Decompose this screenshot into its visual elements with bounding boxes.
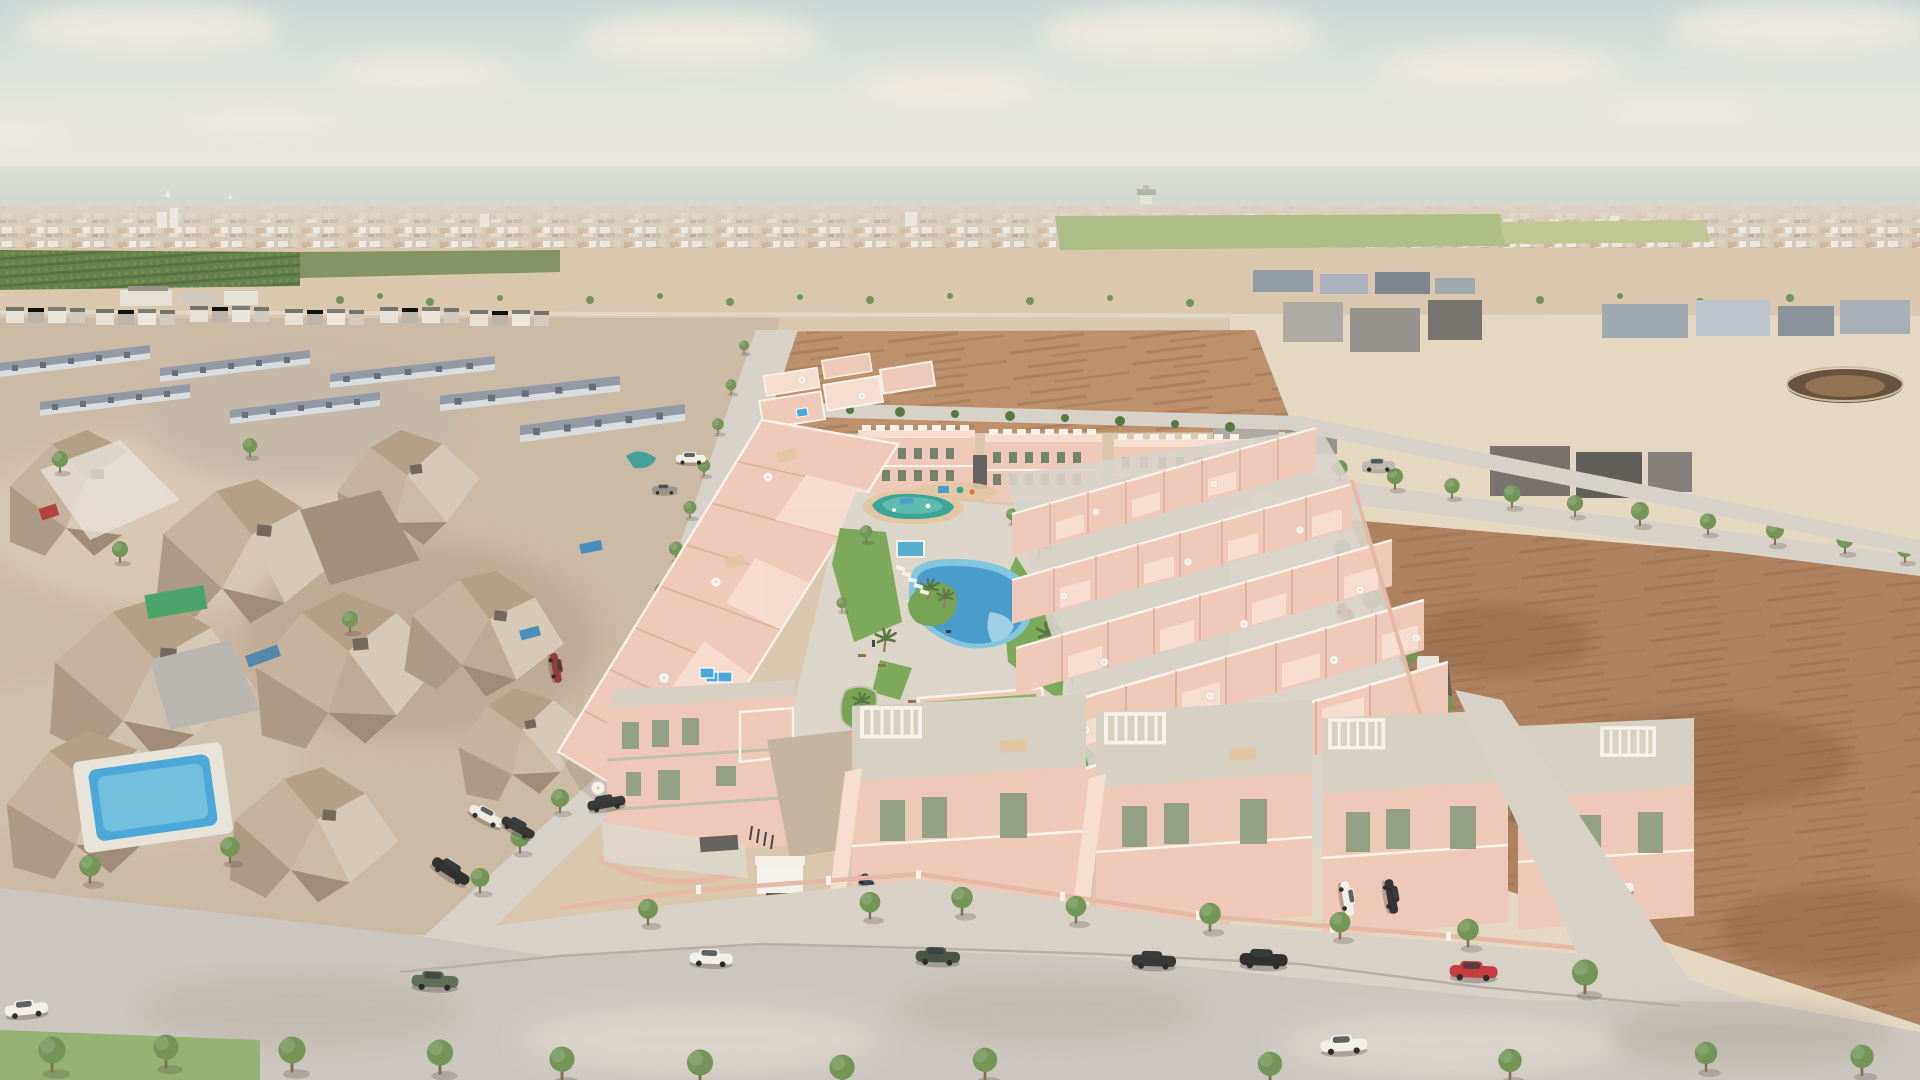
aerial-render bbox=[0, 0, 1920, 1080]
warm-haze-overlay bbox=[0, 0, 1920, 1080]
scene-canvas bbox=[0, 0, 1920, 1080]
